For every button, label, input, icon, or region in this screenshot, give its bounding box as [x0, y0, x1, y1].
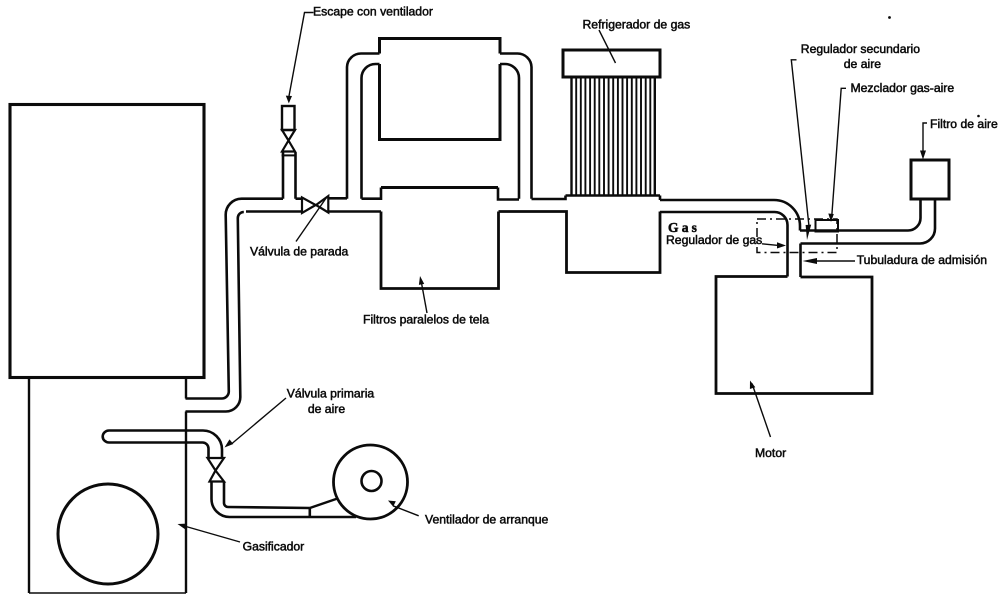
svg-text:Filtros paralelos de tela: Filtros paralelos de tela [363, 313, 489, 327]
svg-text:Ventilador de arranque: Ventilador de arranque [425, 512, 549, 526]
svg-text:de aire: de aire [844, 57, 881, 71]
svg-text:Gasificador: Gasificador [243, 540, 305, 554]
svg-text:Escape con ventilador: Escape con ventilador [313, 5, 433, 19]
svg-text:Tubuladura de admisión: Tubuladura de admisión [857, 253, 987, 267]
svg-text:Regulador de gas: Regulador de gas [666, 233, 762, 247]
svg-text:Filtro de aire: Filtro de aire [930, 117, 998, 131]
svg-text:Motor: Motor [755, 446, 786, 460]
svg-text:Válvula de parada: Válvula de parada [250, 245, 348, 259]
svg-text:Regulador secundario: Regulador secundario [801, 42, 920, 56]
svg-text:Válvula primaria: Válvula primaria [287, 387, 375, 401]
svg-text:Mezclador gas-aire: Mezclador gas-aire [851, 81, 955, 95]
svg-text:Refrigerador de gas: Refrigerador de gas [583, 17, 691, 31]
svg-text:de aire: de aire [308, 402, 345, 416]
